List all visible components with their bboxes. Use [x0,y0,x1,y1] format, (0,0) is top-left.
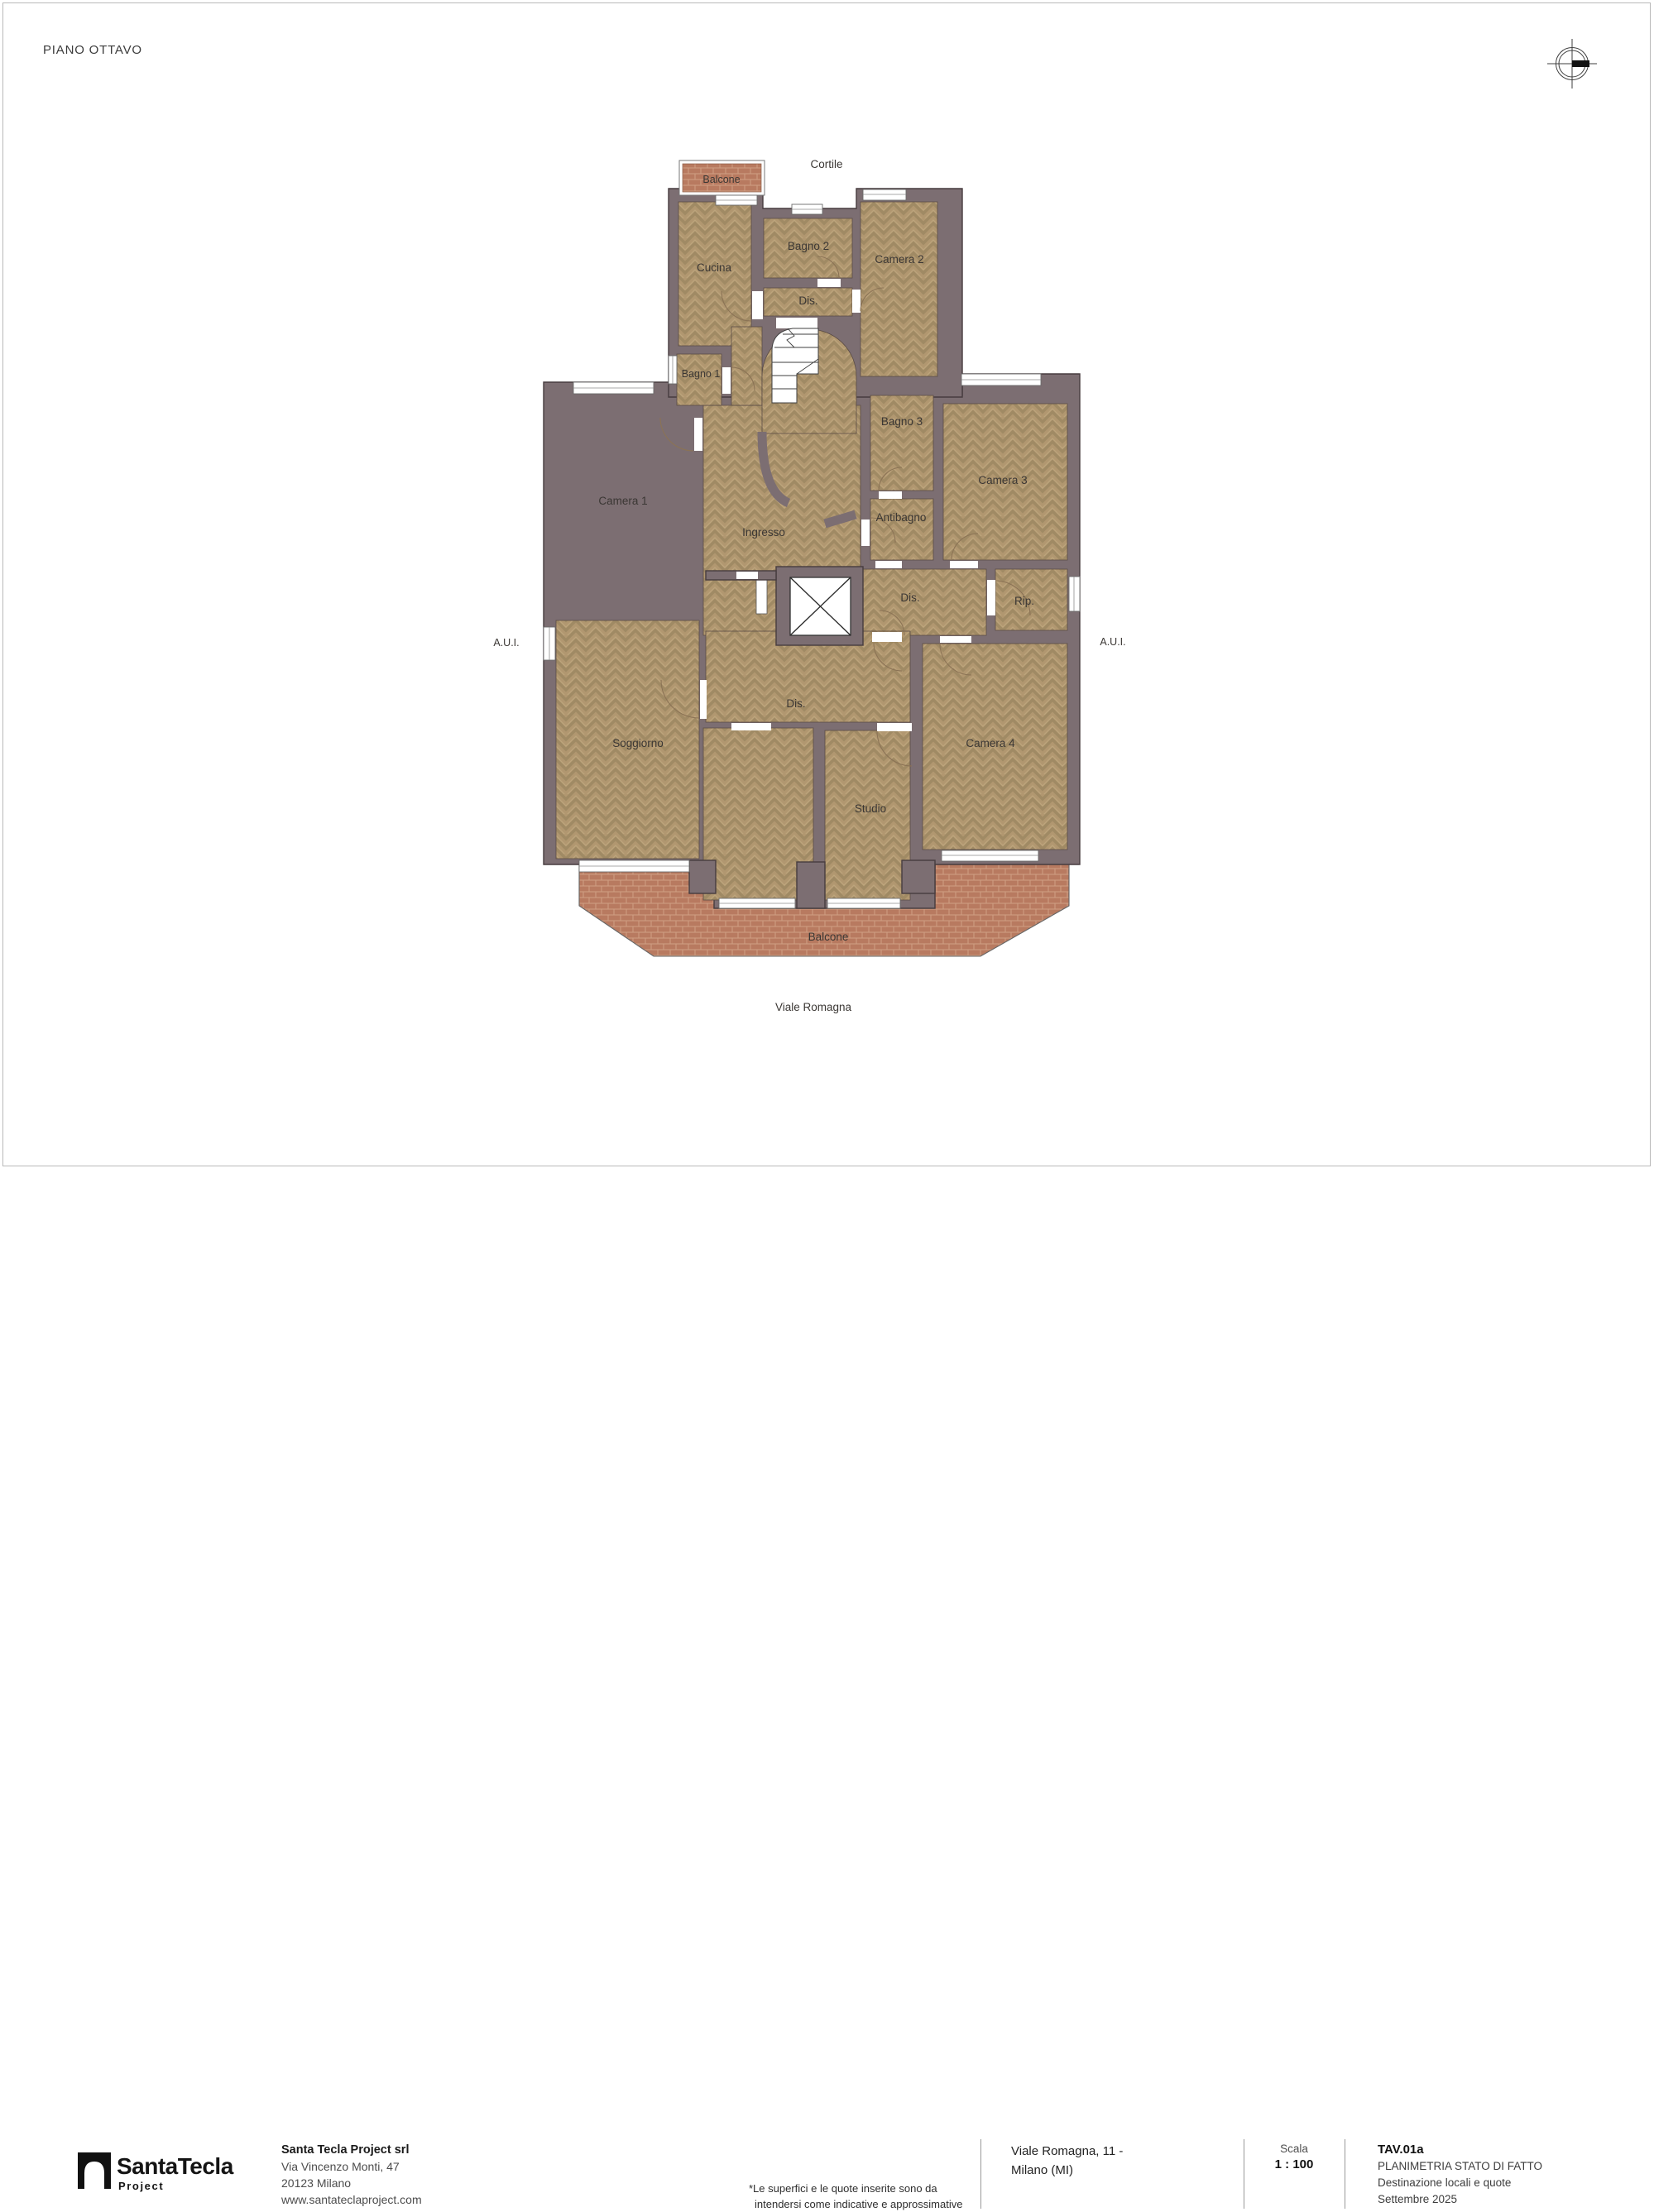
sheet-date: Settembre 2025 [1378,2191,1542,2208]
site-address-line2: Milano (MI) [1011,2161,1123,2180]
title-block: SantaTecla Project Santa Tecla Project s… [0,1067,1654,1158]
room-label-antibagno: Antibagno [876,511,927,524]
company-website: www.santateclaproject.com [281,2191,422,2208]
shaft-duct [756,579,767,614]
santa-tecla-arch-logo-icon [77,2152,112,2190]
cucina-floor [678,202,751,346]
aui-right-label: A.U.I. [1100,636,1125,648]
antibagno-floor [870,499,933,560]
north-compass-icon [1547,39,1597,89]
disclaimer-note: *Le superfici e le quote inserite sono d… [749,2181,962,2212]
room-label-rip: Rip. [1014,595,1034,607]
disclaimer-line2: intendersi come indicative e approssimat… [749,2196,962,2212]
aui-left-label: A.U.I. [493,637,519,649]
company-address-line2: 20123 Milano [281,2175,422,2191]
courtyard-label: Cortile [810,158,842,170]
divider [1345,2139,1345,2209]
camera2-floor [861,202,937,376]
company-name: Santa Tecla Project srl [281,2142,422,2158]
scale-value: 1 : 100 [1244,2157,1345,2171]
bagno3-floor [870,395,933,491]
room-label-camera4: Camera 4 [966,737,1015,749]
bagno1-floor [677,354,722,405]
room-label-camera3: Camera 3 [978,474,1027,486]
brand-name: SantaTecla [117,2153,233,2180]
disclaimer-line1: *Le superfici e le quote inserite sono d… [749,2181,962,2196]
room-label-camera1: Camera 1 [598,495,647,507]
sheet-title: PLANIMETRIA STATO DI FATTO [1378,2158,1542,2175]
room-label-cucina: Cucina [697,261,732,274]
stair-landing-floor [731,327,762,405]
balcony-bottom-label: Balcone [808,931,849,943]
sheet-info: TAV.01a PLANIMETRIA STATO DI FATTO Desti… [1378,2142,1542,2208]
room-label-studio: Studio [855,802,886,815]
room-label-dis-low: Dis. [786,697,805,710]
room-label-dis-mid: Dis. [900,591,919,604]
floor-plan-drawing: Cortile Balcone Cucina Bagno 2 Camera 2 … [0,0,1654,1170]
balcony-top-label: Balcone [702,174,740,185]
company-info: Santa Tecla Project srl Via Vincenzo Mon… [281,2142,422,2208]
room-label-ingresso: Ingresso [742,526,785,539]
scale-label: Scala [1244,2143,1345,2155]
room-label-soggiorno: Soggiorno [612,737,664,749]
studio-floor [825,730,910,900]
room-label-bagno1: Bagno 1 [682,368,721,380]
street-label: Viale Romagna [775,1001,852,1013]
company-address-line1: Via Vincenzo Monti, 47 [281,2158,422,2175]
sheet-code: TAV.01a [1378,2142,1542,2158]
dis-mid-floor [862,569,986,635]
site-address-line1: Viale Romagna, 11 - [1011,2142,1123,2161]
scale-box: Scala 1 : 100 [1244,2143,1345,2171]
divider [980,2139,981,2209]
drawing-sheet: { "header": { "floor_title": "PIANO OTTA… [0,0,1654,1170]
brand-subtitle: Project [118,2180,164,2192]
sheet-subtitle: Destinazione locali e quote [1378,2175,1542,2191]
room-label-bagno3: Bagno 3 [881,415,923,428]
room-label-bagno2: Bagno 2 [788,240,829,252]
room-label-dis-top: Dis. [798,294,817,307]
site-address: Viale Romagna, 11 - Milano (MI) [1011,2142,1123,2180]
room-label-camera2: Camera 2 [875,253,923,266]
